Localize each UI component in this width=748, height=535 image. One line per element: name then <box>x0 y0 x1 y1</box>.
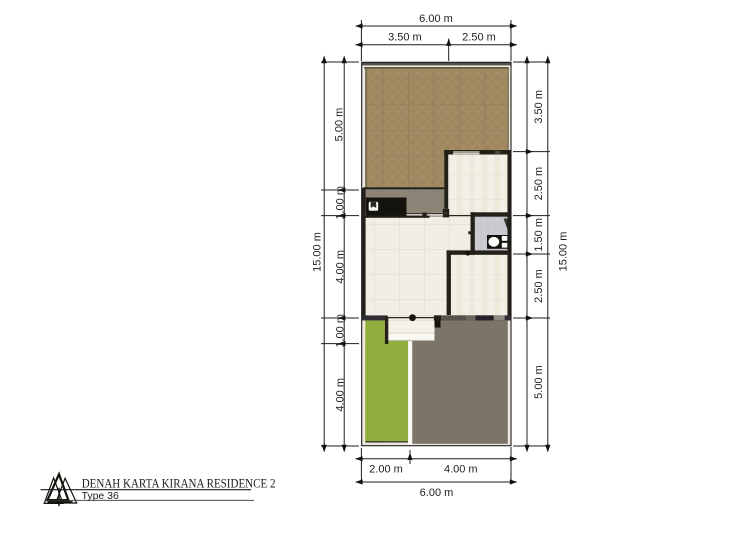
svg-text:15.00 m: 15.00 m <box>557 232 569 272</box>
svg-text:3.50 m: 3.50 m <box>533 90 545 124</box>
svg-text:1.00 m: 1.00 m <box>335 314 347 348</box>
svg-text:2.00 m: 2.00 m <box>369 463 403 475</box>
svg-text:5.00 m: 5.00 m <box>333 108 345 142</box>
svg-text:4.00 m: 4.00 m <box>335 250 347 284</box>
svg-text:4.00 m: 4.00 m <box>335 378 347 412</box>
svg-text:2.50 m: 2.50 m <box>533 167 545 201</box>
svg-text:4.00 m: 4.00 m <box>444 463 478 475</box>
svg-text:1.50 m: 1.50 m <box>533 218 545 252</box>
svg-text:2.50 m: 2.50 m <box>462 32 496 44</box>
svg-text:6.00 m: 6.00 m <box>419 13 453 25</box>
svg-text:3.50 m: 3.50 m <box>388 32 422 44</box>
svg-text:1.00 m: 1.00 m <box>335 186 347 220</box>
svg-text:5.00 m: 5.00 m <box>533 365 545 399</box>
svg-text:2.50 m: 2.50 m <box>533 269 545 303</box>
svg-text:6.00 m: 6.00 m <box>420 487 454 499</box>
svg-text:15.00 m: 15.00 m <box>311 232 323 272</box>
svg-text:DENAH KARTA KIRANA RESIDENCE 2: DENAH KARTA KIRANA RESIDENCE 2 <box>82 476 276 490</box>
svg-text:Type 36: Type 36 <box>82 490 120 502</box>
